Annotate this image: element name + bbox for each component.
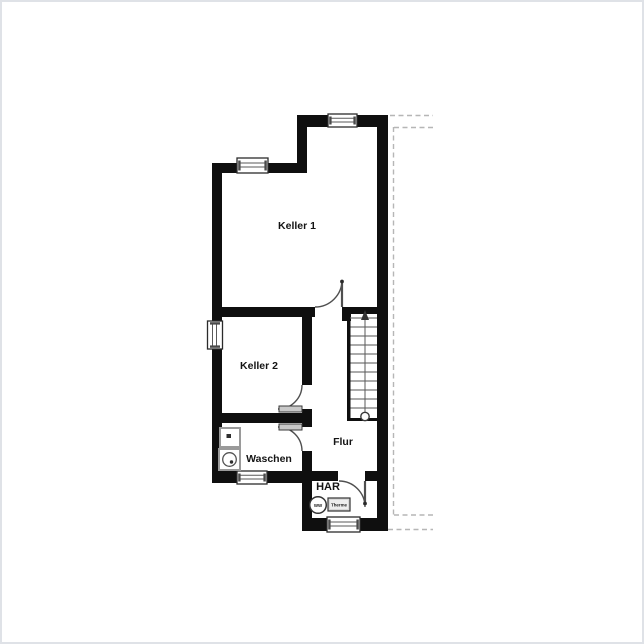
window-frame xyxy=(327,517,360,532)
window-end-cap xyxy=(238,161,240,171)
door-arc xyxy=(278,427,302,451)
water-heater-label: WW xyxy=(314,503,323,508)
wall-keller2-flur-junction xyxy=(302,409,312,427)
window-end-cap xyxy=(329,117,331,125)
washing-machine-symbol xyxy=(219,449,240,470)
room-label-flur: Flur xyxy=(333,436,353,448)
wall-right xyxy=(377,115,388,531)
room-label-har: HAR xyxy=(316,481,340,493)
door-arc xyxy=(278,385,302,409)
window-end-cap xyxy=(353,117,355,125)
therme-label: Therme xyxy=(331,502,347,507)
wall-keller1-bottom xyxy=(212,307,315,317)
window-end-cap xyxy=(328,520,330,530)
door-leaf xyxy=(279,406,302,412)
washer-drum xyxy=(223,453,237,467)
window-keller2-left xyxy=(208,321,223,349)
window-frame xyxy=(328,114,357,127)
window-end-cap xyxy=(263,474,265,482)
door-leaf-tip xyxy=(340,280,344,284)
laundry-fixtures xyxy=(219,428,240,470)
door-arc xyxy=(315,280,342,307)
wall-har-top xyxy=(312,471,338,481)
door-keller1 xyxy=(315,280,344,307)
room-label-waschen: Waschen xyxy=(246,453,292,465)
floor-plan-page: WW Therme Keller 1 Keller 2 Flur Waschen… xyxy=(0,0,644,644)
wall-keller2-flur-bottom xyxy=(302,451,312,473)
window-frame xyxy=(208,321,223,349)
window-end-cap xyxy=(210,322,220,324)
water-heater-symbol: WW xyxy=(310,497,327,514)
window-frame xyxy=(237,158,268,173)
window-frame xyxy=(237,471,267,484)
door-keller2 xyxy=(278,385,302,412)
har-fixtures: WW Therme xyxy=(310,497,350,514)
neighbor-outline-dashed xyxy=(388,116,433,530)
window-end-cap xyxy=(238,474,240,482)
dryer-mark xyxy=(227,434,232,438)
window-keller1-top xyxy=(328,114,357,127)
stair-start-marker xyxy=(361,412,369,420)
door-leaf-tip xyxy=(363,502,367,506)
wall-keller2-waschen-divider xyxy=(222,413,302,423)
therme-unit: Therme xyxy=(328,498,350,511)
door-leaf xyxy=(279,424,302,430)
window-end-cap xyxy=(264,161,266,171)
window-keller1-topleft xyxy=(237,158,268,173)
room-labels: Keller 1 Keller 2 Flur Waschen HAR xyxy=(240,220,353,493)
washer-dot xyxy=(230,460,233,463)
dryer-symbol xyxy=(220,428,240,447)
window-waschen-bottom xyxy=(237,471,267,484)
stair-stringer xyxy=(347,314,351,421)
window-end-cap xyxy=(356,520,358,530)
staircase xyxy=(351,310,378,421)
room-label-keller2: Keller 2 xyxy=(240,360,278,372)
window-har-bottom xyxy=(327,517,360,532)
room-label-keller1: Keller 1 xyxy=(278,220,316,232)
wall-keller2-flur-top xyxy=(302,317,312,385)
wall-har-top-stub xyxy=(365,471,377,481)
door-waschen xyxy=(278,424,302,451)
window-end-cap xyxy=(210,345,220,347)
floor-plan-canvas: WW Therme Keller 1 Keller 2 Flur Waschen… xyxy=(0,0,644,644)
